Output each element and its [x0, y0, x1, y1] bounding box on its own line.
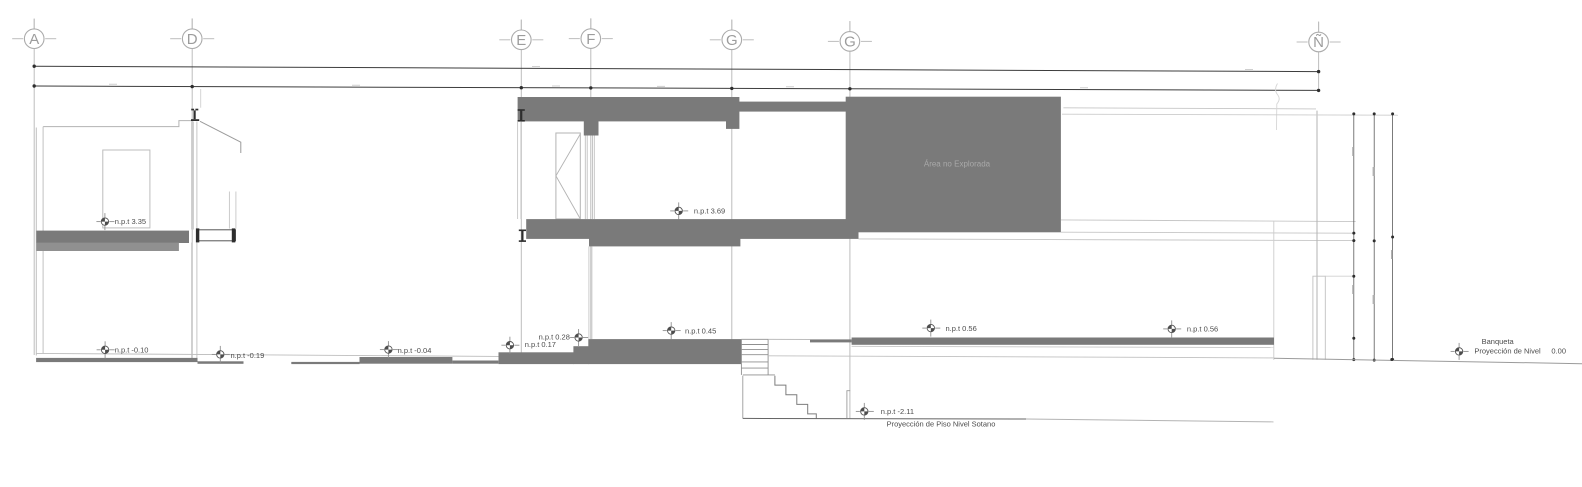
svg-text:n.p.t 3.69: n.p.t 3.69 [694, 207, 725, 216]
svg-text:n.p.t -0.10: n.p.t -0.10 [115, 345, 149, 354]
svg-text:n.p.t -0.04: n.p.t -0.04 [398, 346, 432, 355]
svg-text:Proyección de Nivel: Proyección de Nivel [1474, 347, 1541, 356]
svg-text:n.p.t 0.56: n.p.t 0.56 [1187, 325, 1218, 334]
svg-text:n.p.t 3.35: n.p.t 3.35 [115, 217, 146, 226]
svg-text:Banqueta: Banqueta [1482, 337, 1515, 346]
svg-text:D: D [187, 31, 198, 48]
svg-text:E: E [516, 32, 526, 49]
svg-text:n.p.t 0.45: n.p.t 0.45 [685, 326, 716, 335]
svg-text:Área no Explorada: Área no Explorada [924, 159, 991, 168]
svg-text:0.00: 0.00 [1551, 347, 1566, 356]
svg-text:G: G [844, 34, 856, 51]
svg-text:n.p.t -0.19: n.p.t -0.19 [231, 351, 265, 360]
svg-text:n.p.t 0.56: n.p.t 0.56 [946, 324, 977, 333]
svg-text:n.p.t 0.28: n.p.t 0.28 [539, 333, 570, 342]
svg-text:Ñ: Ñ [1313, 34, 1324, 51]
svg-text:F: F [586, 31, 595, 48]
svg-text:G: G [726, 32, 738, 49]
svg-text:A: A [29, 31, 39, 48]
svg-text:n.p.t -2.11: n.p.t -2.11 [881, 407, 914, 416]
svg-text:Proyección de Piso Nivel Sotan: Proyección de Piso Nivel Sotano [887, 420, 996, 429]
